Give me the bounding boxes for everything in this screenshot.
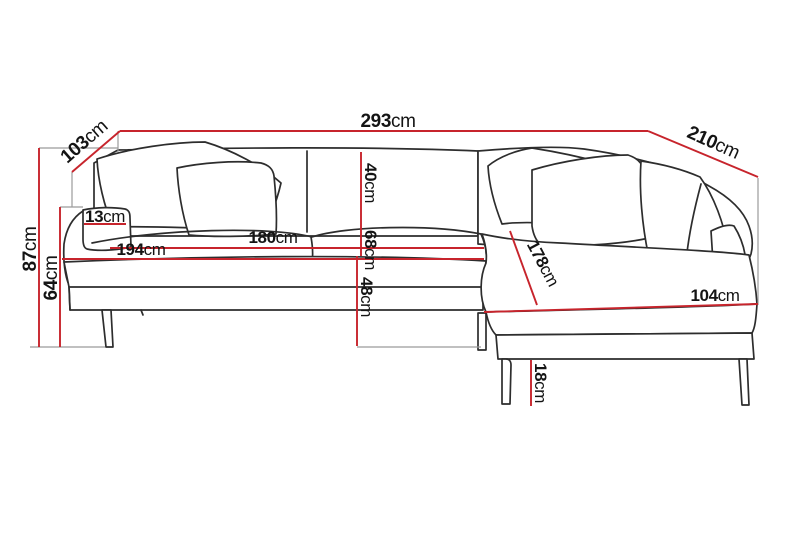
dim-label-seat-width-cushions: 180cm	[248, 228, 297, 247]
dim-label-seat-back-height: 68cm	[361, 230, 380, 270]
leg	[102, 310, 113, 347]
dim-label-back-height: 87cm	[20, 227, 41, 272]
pillow	[177, 162, 276, 237]
leg	[739, 359, 749, 405]
seat-front-edge	[64, 257, 486, 287]
dim-label-total-width: 293cm	[360, 111, 415, 132]
pillow	[532, 155, 649, 246]
sofa-drawing	[64, 142, 757, 405]
diagram-svg: 293cm 103cm 210cm 87cm 64cm 13cm 194cm 1…	[0, 0, 800, 533]
dim-label-arm-height: 64cm	[41, 256, 62, 301]
leg	[502, 359, 511, 404]
base-frame	[69, 287, 483, 310]
sofa-dimension-diagram: 293cm 103cm 210cm 87cm 64cm 13cm 194cm 1…	[0, 0, 800, 533]
dim-label-seat-height: 48cm	[357, 277, 376, 317]
dim-label-leg-height: 18cm	[531, 363, 550, 403]
dim-label-arm-width: 13cm	[85, 207, 125, 226]
dim-label-backrest-height: 40cm	[361, 163, 380, 203]
leg	[478, 313, 486, 350]
dim-label-seat-width-front: 194cm	[116, 240, 165, 259]
chaise-base-frame	[496, 333, 754, 359]
dim-label-chaise-width: 104cm	[690, 286, 739, 305]
